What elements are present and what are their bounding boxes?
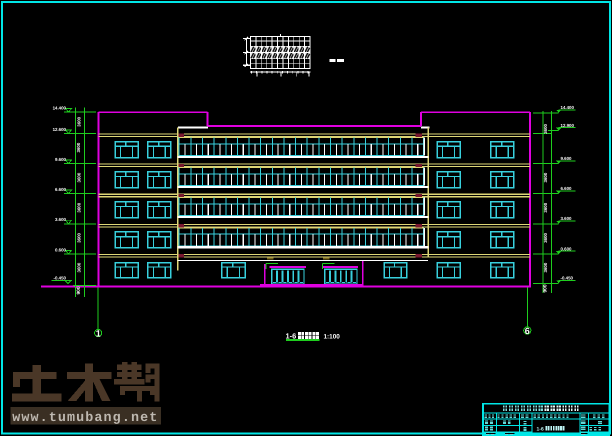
svg-text:900: 900: [76, 286, 82, 294]
svg-text:3600: 3600: [76, 202, 81, 212]
svg-text:-0.450: -0.450: [561, 276, 574, 281]
svg-text:3.600: 3.600: [561, 216, 573, 221]
svg-text:1:100: 1:100: [324, 334, 341, 341]
svg-text:12.600: 12.600: [53, 127, 67, 132]
svg-text:9.600: 9.600: [55, 157, 67, 162]
svg-text:3.600: 3.600: [55, 217, 67, 222]
svg-text:3600: 3600: [76, 232, 81, 242]
svg-text:3600: 3600: [543, 123, 548, 133]
svg-text:0.600: 0.600: [561, 246, 573, 251]
svg-text:6: 6: [525, 326, 530, 336]
svg-text:14.400: 14.400: [53, 106, 67, 111]
svg-text:1: 1: [96, 329, 101, 339]
svg-text:1-6: 1-6: [537, 427, 544, 433]
svg-text:3600: 3600: [76, 116, 81, 126]
svg-text:0.600: 0.600: [55, 247, 67, 252]
svg-text:3600: 3600: [76, 142, 81, 152]
svg-text:9.600: 9.600: [561, 156, 573, 161]
svg-text:3600: 3600: [543, 262, 548, 272]
svg-text:900: 900: [543, 284, 549, 292]
svg-text:3600: 3600: [76, 262, 81, 272]
svg-text:3600: 3600: [543, 232, 548, 242]
svg-text:3600: 3600: [543, 172, 548, 182]
svg-text:12.900: 12.900: [561, 123, 575, 128]
svg-text:www.tumubang.net: www.tumubang.net: [12, 411, 158, 426]
svg-text:3600: 3600: [543, 202, 548, 212]
svg-text:-0.450: -0.450: [54, 275, 67, 280]
svg-text:14.400: 14.400: [561, 105, 575, 110]
svg-text:3600: 3600: [76, 172, 81, 182]
svg-text:6.600: 6.600: [561, 186, 573, 191]
svg-text:6.600: 6.600: [55, 187, 67, 192]
